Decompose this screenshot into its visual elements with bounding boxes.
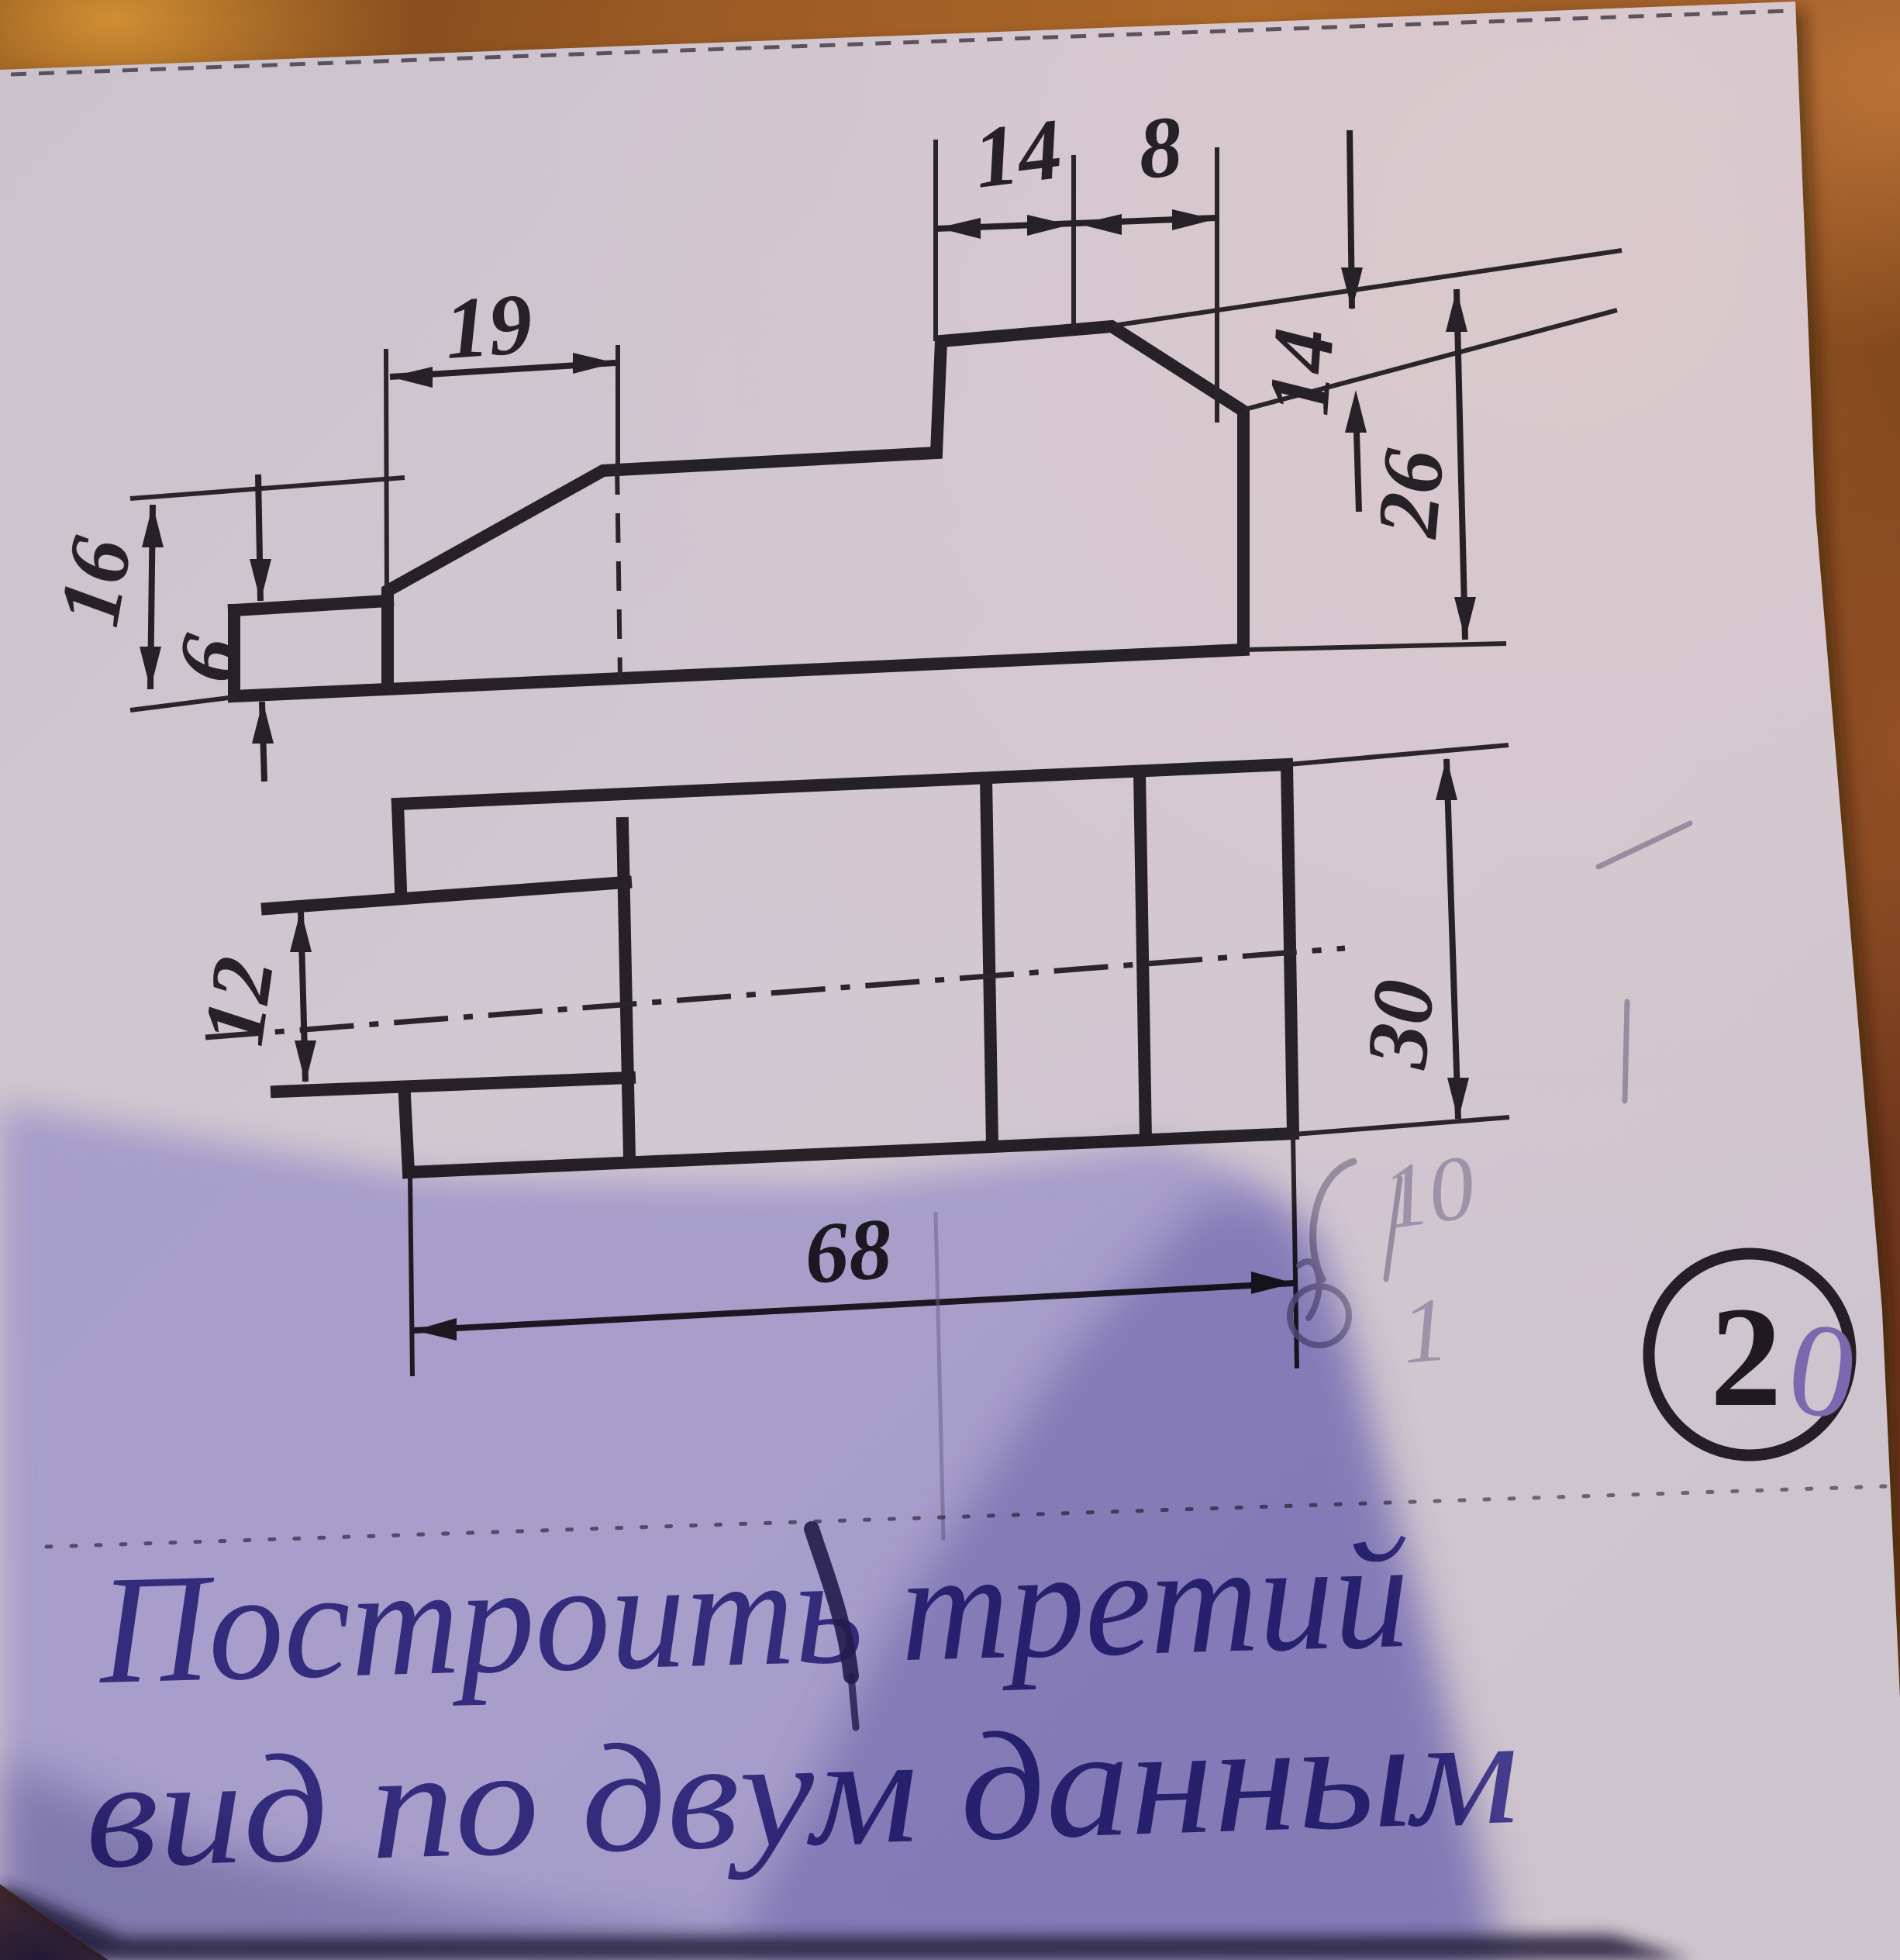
pencil-tick-right — [1625, 1002, 1627, 1101]
dim-26-label: 26 — [1359, 446, 1462, 542]
badge-digit-2: 2 — [1710, 1278, 1782, 1437]
dim-16-label: 16 — [41, 531, 151, 633]
photo-of-drawing-exercise: 19 14 8 14 — [0, 0, 1900, 1960]
plan-vertical-2 — [986, 778, 992, 1145]
ext-19-left — [386, 349, 387, 593]
dim-14-top-label: 14 — [969, 101, 1067, 207]
drawing-sheet: 19 14 8 14 — [0, 0, 1900, 1960]
plan-vertical-1 — [622, 823, 629, 1158]
dim-30-label: 30 — [1348, 975, 1453, 1072]
dim-8-label: 8 — [1134, 98, 1186, 197]
dim-12-label: 12 — [185, 951, 292, 1051]
plan-left-edge-lower — [405, 1096, 409, 1172]
cast-shadows — [0, 1105, 1508, 1960]
dim-19-label: 19 — [442, 275, 535, 378]
pencil-mark-1: 1 — [1398, 1278, 1452, 1383]
dim-14-right-label: 14 — [1250, 325, 1353, 418]
plan-left-edge-upper — [398, 804, 401, 889]
plan-vertical-3 — [1140, 772, 1146, 1140]
